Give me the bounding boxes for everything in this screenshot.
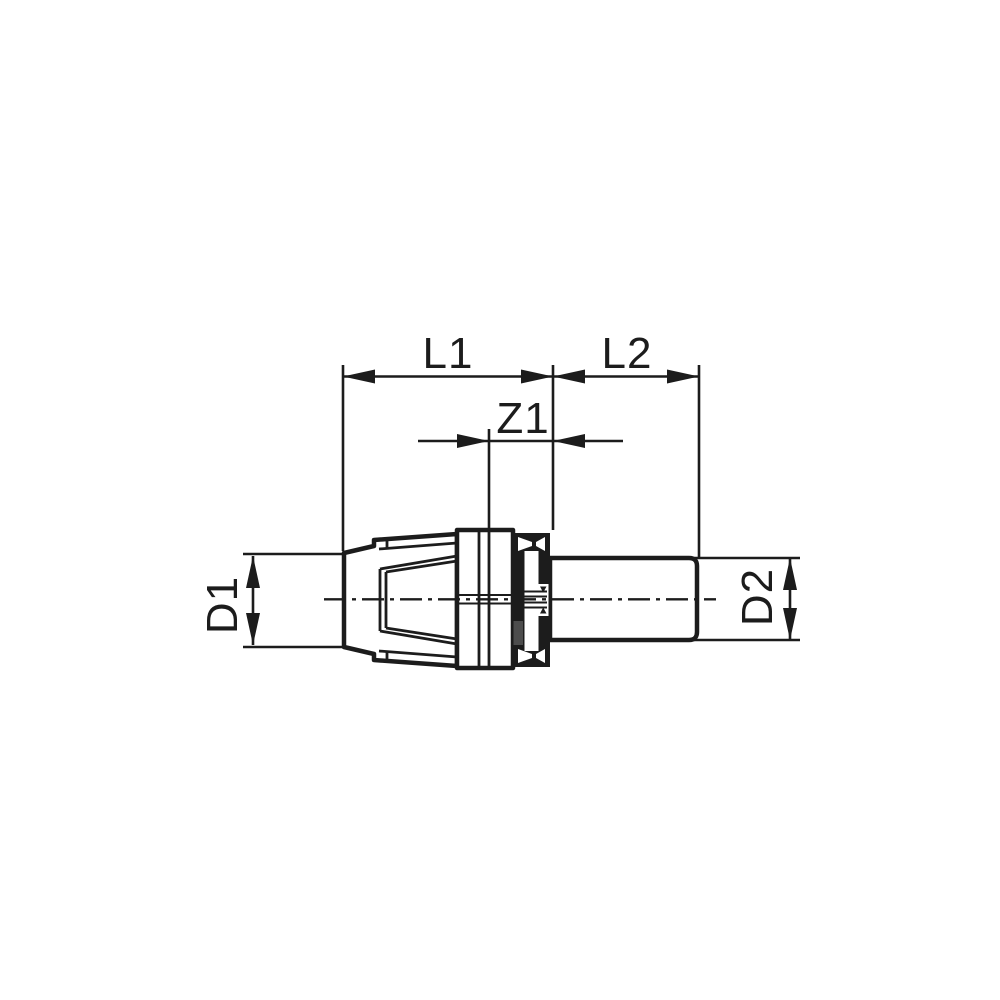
dimension-d1: D1 (198, 556, 260, 645)
dimension-z1: Z1 (418, 394, 623, 448)
label-d1: D1 (198, 576, 247, 634)
label-l1: L1 (423, 329, 474, 378)
label-d2: D2 (733, 568, 782, 626)
flange-inner-slot (525, 551, 539, 651)
label-z1: Z1 (496, 394, 549, 443)
z1-arrowhead-right (553, 434, 585, 448)
dimension-l2: L2 (553, 329, 699, 384)
d2-arrowhead-top (783, 558, 797, 590)
z1-arrowhead-left (457, 434, 489, 448)
d1-arrowhead-bottom (246, 613, 260, 645)
technical-drawing-canvas: L1 L2 Z1 D1 D2 (0, 0, 1000, 1000)
l2-arrowhead-right (667, 370, 699, 384)
d2-arrowhead-bottom (783, 608, 797, 640)
flange-shading-patch (514, 621, 524, 645)
pipe-fitting-diagram: L1 L2 Z1 D1 D2 (0, 0, 1000, 1000)
d1-arrowhead-top (246, 556, 260, 588)
l2-arrowhead-left (553, 370, 585, 384)
l1-arrowhead-left (343, 370, 375, 384)
label-l2: L2 (602, 329, 653, 378)
dimension-d2: D2 (733, 558, 797, 640)
l1-arrowhead-right (521, 370, 553, 384)
dimension-l1: L1 (343, 329, 553, 384)
